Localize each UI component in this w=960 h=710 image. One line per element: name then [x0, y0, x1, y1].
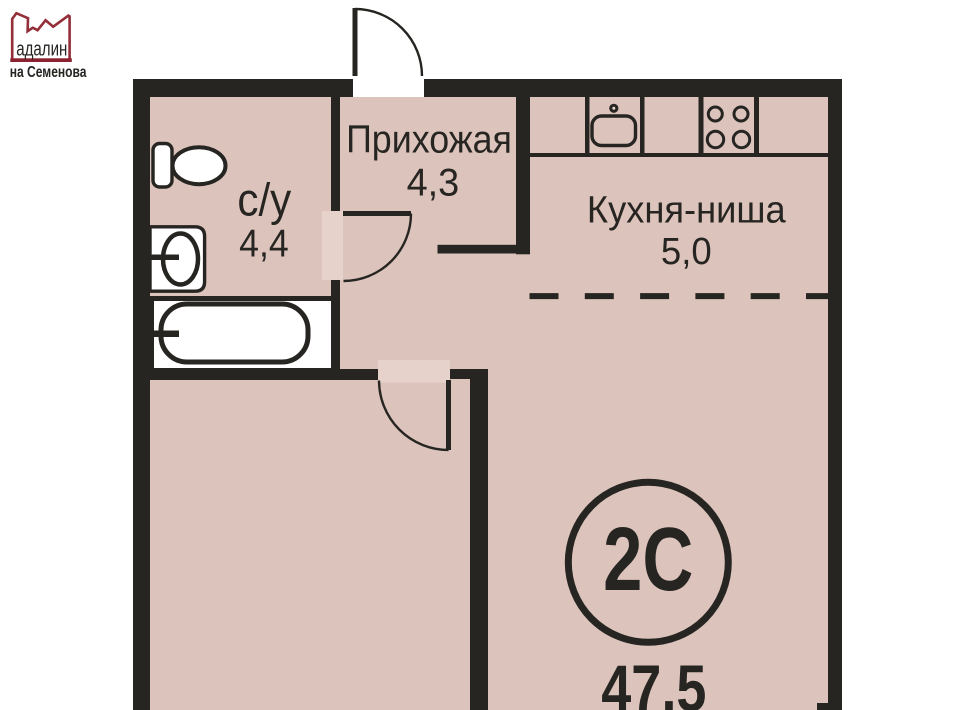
svg-text:адалин: адалин	[16, 37, 67, 60]
svg-text:4,3: 4,3	[407, 161, 460, 205]
svg-text:47,5: 47,5	[601, 651, 706, 710]
svg-text:на Семенова: на Семенова	[10, 64, 87, 82]
svg-text:Кухня-ниша: Кухня-ниша	[587, 188, 786, 231]
svg-text:4,4: 4,4	[239, 221, 289, 265]
svg-text:5,0: 5,0	[661, 229, 712, 272]
svg-text:2C: 2C	[603, 510, 693, 610]
svg-text:с/у: с/у	[237, 175, 291, 226]
svg-text:Прихожая: Прихожая	[346, 117, 512, 161]
